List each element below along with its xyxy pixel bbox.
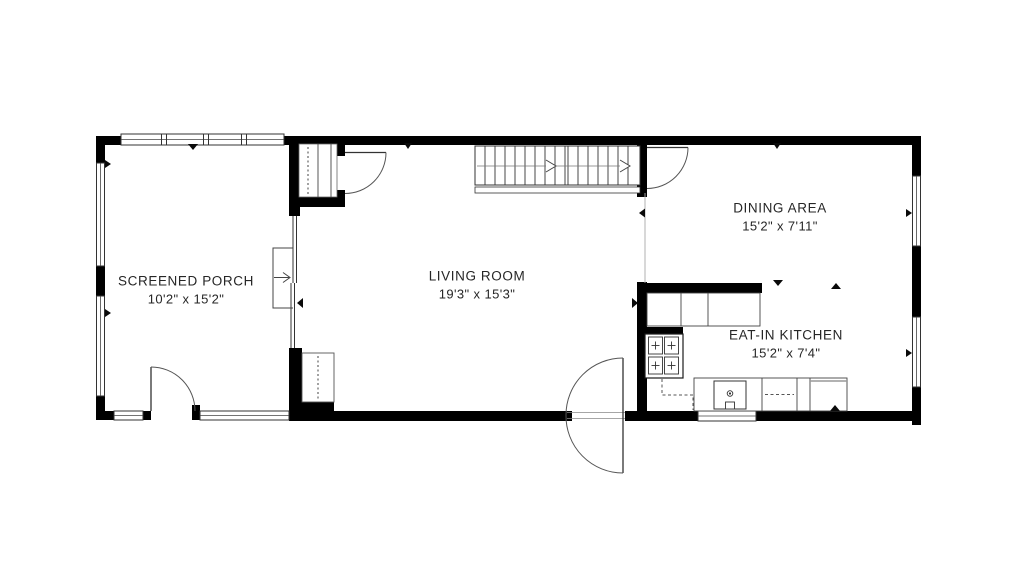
room-label-eat-in-kitchen: EAT-IN KITCHEN 15'2" x 7'4" [729,328,843,361]
room-name: DINING AREA [733,201,827,216]
wall-segment [284,136,920,145]
marker-triangle-icon [639,209,645,218]
marker-triangle-icon [773,143,781,149]
marker-triangle-icon [105,309,111,317]
wall-segment [192,405,200,420]
window [121,134,284,145]
closet-door [345,153,386,194]
marker-triangle-icon [773,280,783,286]
stair-stringer [475,187,640,193]
room-name: SCREENED PORCH [118,274,254,289]
room-label-dining-area: DINING AREA 15'2" x 7'11" [733,201,827,234]
marker-triangle-icon [404,143,412,149]
window [913,176,921,246]
porch-door [151,367,195,411]
stove [645,334,683,378]
room-label-living-room: LIVING ROOM 19'3" x 15'3" [429,269,526,302]
wall-segment [96,411,114,420]
sliding-door [273,216,297,348]
wall-segment [289,402,334,411]
room-label-screened-porch: SCREENED PORCH 10'2" x 15'2" [118,274,254,307]
stair-door [647,148,688,189]
floor-plan-canvas: SCREENED PORCH 10'2" x 15'2" LIVING ROOM… [0,0,1024,576]
room-dimensions: 19'3" x 15'3" [429,287,526,302]
marker-triangle-icon [831,283,841,289]
wall-segment [289,411,572,421]
wall-segment [96,136,105,163]
upper-countertop [647,293,760,326]
doors [151,148,688,474]
window [97,163,105,266]
marker-triangle-icon [906,349,912,357]
wall-segment [639,283,762,293]
window [97,296,105,396]
marker-triangle-icon [297,298,303,308]
wall-segment [625,411,698,421]
closet-bottom [302,353,334,402]
wall-segment [912,246,921,317]
wall-segment [289,348,302,411]
sink-drain [726,402,735,409]
closet-top [299,144,337,197]
window [698,411,756,421]
room-name: EAT-IN KITCHEN [729,328,843,343]
window [913,317,921,387]
wall-segment [143,411,151,420]
marker-triangle-icon [188,144,198,150]
wall-segment [912,136,921,176]
sink [714,381,746,409]
room-dimensions: 15'2" x 7'11" [733,219,827,234]
marker-triangle-icon [906,209,912,217]
marker-triangle-icon [105,160,111,168]
window [200,411,289,420]
room-dimensions: 10'2" x 15'2" [118,292,254,307]
wall-segment [293,197,345,207]
room-name: LIVING ROOM [429,269,526,284]
wall-segment [337,143,345,156]
double-acting-door [566,358,625,473]
staircase [475,146,640,193]
wall-segment [756,411,921,421]
faucet-dot-icon [729,392,731,394]
wall-segment [641,327,683,334]
wall-segment [96,266,105,296]
future-appliance-outline [662,379,693,410]
window [114,411,143,420]
room-dimensions: 15'2" x 7'4" [729,346,843,361]
